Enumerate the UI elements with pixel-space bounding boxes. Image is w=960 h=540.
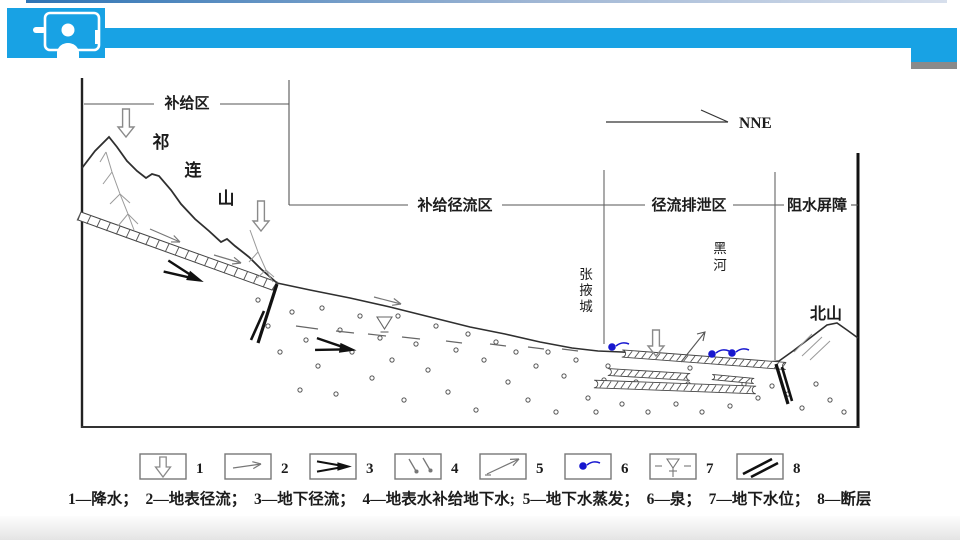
- qilian-label-char: 祁: [153, 132, 170, 152]
- nne-label: NNE: [739, 115, 772, 132]
- legend-number: 5: [536, 461, 544, 477]
- fault-qilian-front: [251, 284, 277, 343]
- nne-arrow: [606, 110, 728, 122]
- zhangye-label-char: 掖: [579, 283, 593, 298]
- zone-label-recharge: 补给区: [163, 94, 209, 112]
- hydrogeology-cross-section: 补给区 补给径流区 径流排泄区 阻水屏障 NNE: [0, 0, 960, 540]
- legend-caption: 1—降水； 2—地表径流； 3—地下径流； 4—地表水补给地下水; 5—地下水蒸…: [68, 489, 871, 508]
- beishan-label: 北山: [810, 305, 842, 323]
- fault-beishan-front: [776, 364, 792, 404]
- aquitard-lenses: [594, 350, 786, 394]
- water-table-symbol: [377, 317, 392, 332]
- legend-number: 1: [196, 461, 204, 477]
- slide: 补给区 补给径流区 径流排泄区 阻水屏障 NNE: [0, 0, 960, 540]
- mountain-drainage-lines: [100, 152, 830, 360]
- legend-number: 6: [621, 461, 629, 477]
- zone-label-water-barrier: 阻水屏障: [787, 196, 847, 214]
- legend-number: 7: [706, 461, 714, 477]
- zone-label-recharge-runoff: 补给径流区: [416, 196, 492, 214]
- qilian-label-char: 山: [218, 189, 235, 208]
- legend-number: 4: [451, 461, 459, 477]
- heihe-label-char: 河: [713, 258, 727, 273]
- groundwater-flow-arrow: [164, 260, 206, 287]
- heihe-label-char: 黑: [713, 241, 727, 256]
- alluvium-dots: [256, 298, 846, 414]
- zone-label-runoff-discharge: 径流排泄区: [651, 196, 726, 214]
- qilian-label-char: 连: [185, 160, 203, 180]
- legend-number: 3: [366, 461, 374, 477]
- qilian-mountain-profile: [82, 137, 277, 283]
- legend-number: 8: [793, 461, 801, 477]
- zhangye-label-char: 张: [579, 267, 593, 282]
- zhangye-label-char: 城: [579, 299, 593, 314]
- legend-number: 2: [281, 461, 289, 477]
